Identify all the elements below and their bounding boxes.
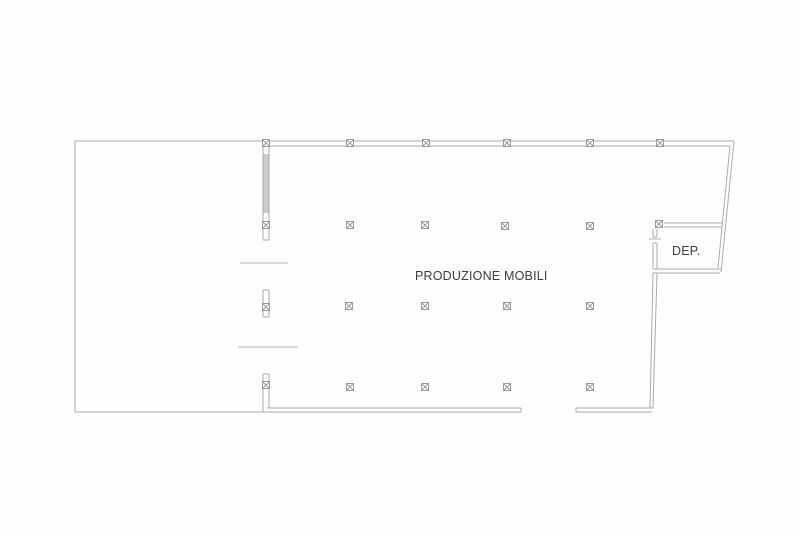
- column-marker: [347, 384, 354, 391]
- column-marker: [587, 140, 594, 147]
- column-marker: [422, 222, 429, 229]
- column-marker: [587, 223, 594, 230]
- column-marker: [347, 140, 354, 147]
- column-marker: [263, 140, 270, 147]
- column-marker: [504, 140, 511, 147]
- column-marker: [422, 384, 429, 391]
- column-marker: [587, 303, 594, 310]
- column-marker: [422, 303, 429, 310]
- column-marker: [263, 222, 270, 229]
- wall-segment: [721, 141, 734, 272]
- column-marker: [346, 303, 353, 310]
- column-marker: [263, 304, 270, 311]
- wall-segment: [653, 273, 657, 408]
- column-marker: [656, 221, 663, 228]
- wall-segment: [650, 273, 653, 408]
- column-marker: [657, 140, 664, 147]
- floor-plan-canvas: PRODUZIONE MOBILI DEP.: [0, 0, 800, 533]
- column-marker: [587, 384, 594, 391]
- room-label-dep: DEP.: [672, 245, 700, 258]
- solid-wall-fill: [264, 154, 269, 213]
- column-marker: [504, 384, 511, 391]
- column-marker: [347, 222, 354, 229]
- wall-segment: [718, 146, 730, 268]
- room-label-produzione-mobili: PRODUZIONE MOBILI: [415, 270, 548, 283]
- column-marker: [504, 303, 511, 310]
- column-marker: [423, 140, 430, 147]
- column-marker: [502, 223, 509, 230]
- floor-plan-drawing: [0, 0, 800, 533]
- column-marker: [263, 382, 270, 389]
